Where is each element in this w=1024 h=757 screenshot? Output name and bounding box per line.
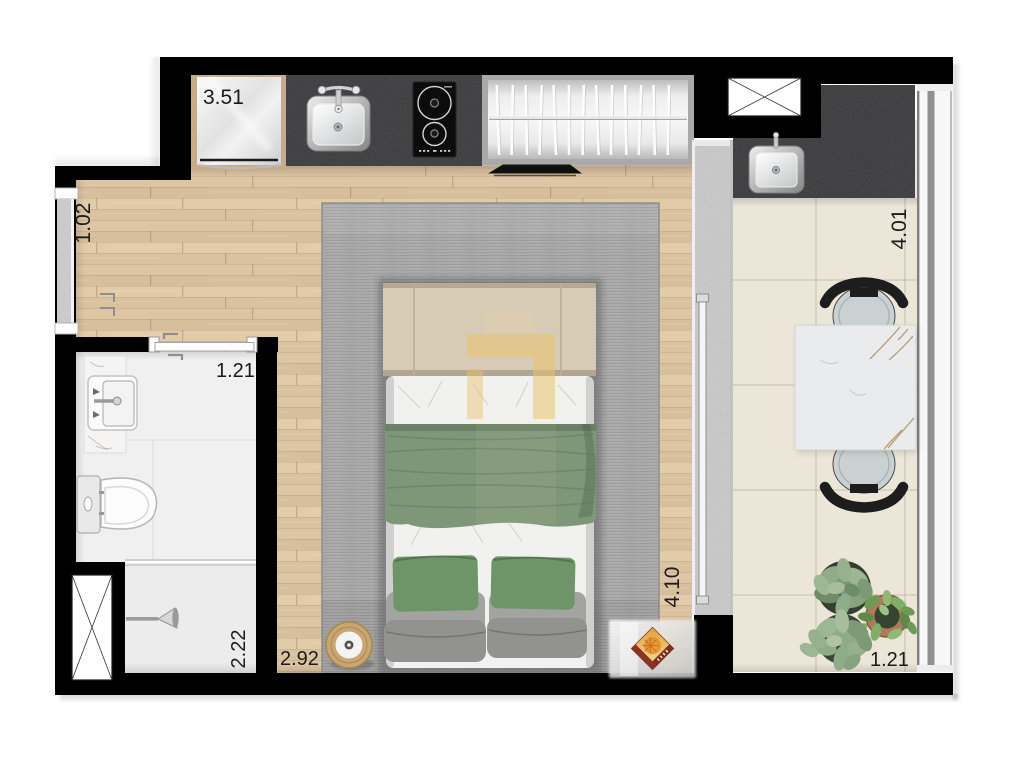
svg-text:1.21: 1.21 [870,649,909,671]
svg-text:4.01: 4.01 [888,209,911,250]
svg-text:2.22: 2.22 [228,630,250,669]
svg-text:1.02: 1.02 [72,203,95,244]
svg-text:1.21: 1.21 [216,360,255,382]
svg-text:3.51: 3.51 [203,86,244,109]
svg-text:2.92: 2.92 [280,648,319,670]
svg-text:4.10: 4.10 [661,567,684,608]
